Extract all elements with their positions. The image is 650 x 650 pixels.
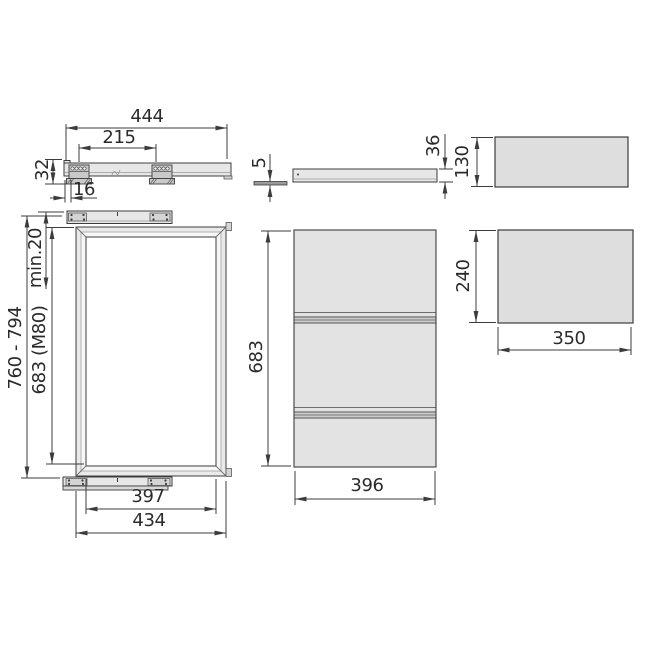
dim-label-profile-height: 36 bbox=[425, 135, 443, 157]
dim-label-top-clearance: min.20 bbox=[27, 228, 45, 288]
drawer-front-view bbox=[498, 230, 633, 323]
frame-front-view bbox=[63, 211, 232, 490]
dim-label-mounting-height: 760 - 794 bbox=[7, 306, 25, 389]
panel bbox=[294, 230, 436, 467]
drawing-linework bbox=[0, 0, 650, 650]
frame-top-rail bbox=[67, 211, 172, 224]
dim-label-drawer-front-height: 240 bbox=[455, 259, 473, 292]
panel-front-view bbox=[294, 230, 436, 467]
drawer-side bbox=[495, 137, 628, 187]
drawer-front bbox=[498, 230, 633, 323]
dim-label-drawer-width: 350 bbox=[552, 330, 585, 348]
dim-label-frame-outer-width: 434 bbox=[132, 512, 165, 530]
drawer-side-view bbox=[495, 137, 628, 187]
dim-label-panel-height: 683 bbox=[248, 340, 266, 373]
dim-label-rail-front-offset: 16 bbox=[73, 181, 95, 199]
dim-label-rail-length: 444 bbox=[130, 108, 163, 126]
frame-tab-bottom bbox=[226, 469, 232, 477]
technical-drawing-canvas: 444 215 32 16 min.20 683 (M80) 760 - 794… bbox=[0, 0, 650, 650]
side-profile bbox=[293, 169, 437, 182]
frame-tab-top bbox=[226, 223, 232, 231]
rail-bracket-right bbox=[150, 165, 175, 184]
dim-label-frame-height: 683 (M80) bbox=[31, 306, 49, 395]
dim-label-rail-height: 32 bbox=[34, 159, 52, 181]
dim-label-rail-hole-spacing: 215 bbox=[102, 129, 135, 147]
dim-label-drawer-side-height: 130 bbox=[454, 145, 472, 178]
dim-label-panel-width: 396 bbox=[350, 477, 383, 495]
frame-tube bbox=[76, 223, 232, 477]
dim-label-frame-inner-width: 397 bbox=[131, 488, 164, 506]
frame-side-view bbox=[254, 169, 437, 185]
dim-label-profile-thickness: 5 bbox=[251, 157, 269, 168]
